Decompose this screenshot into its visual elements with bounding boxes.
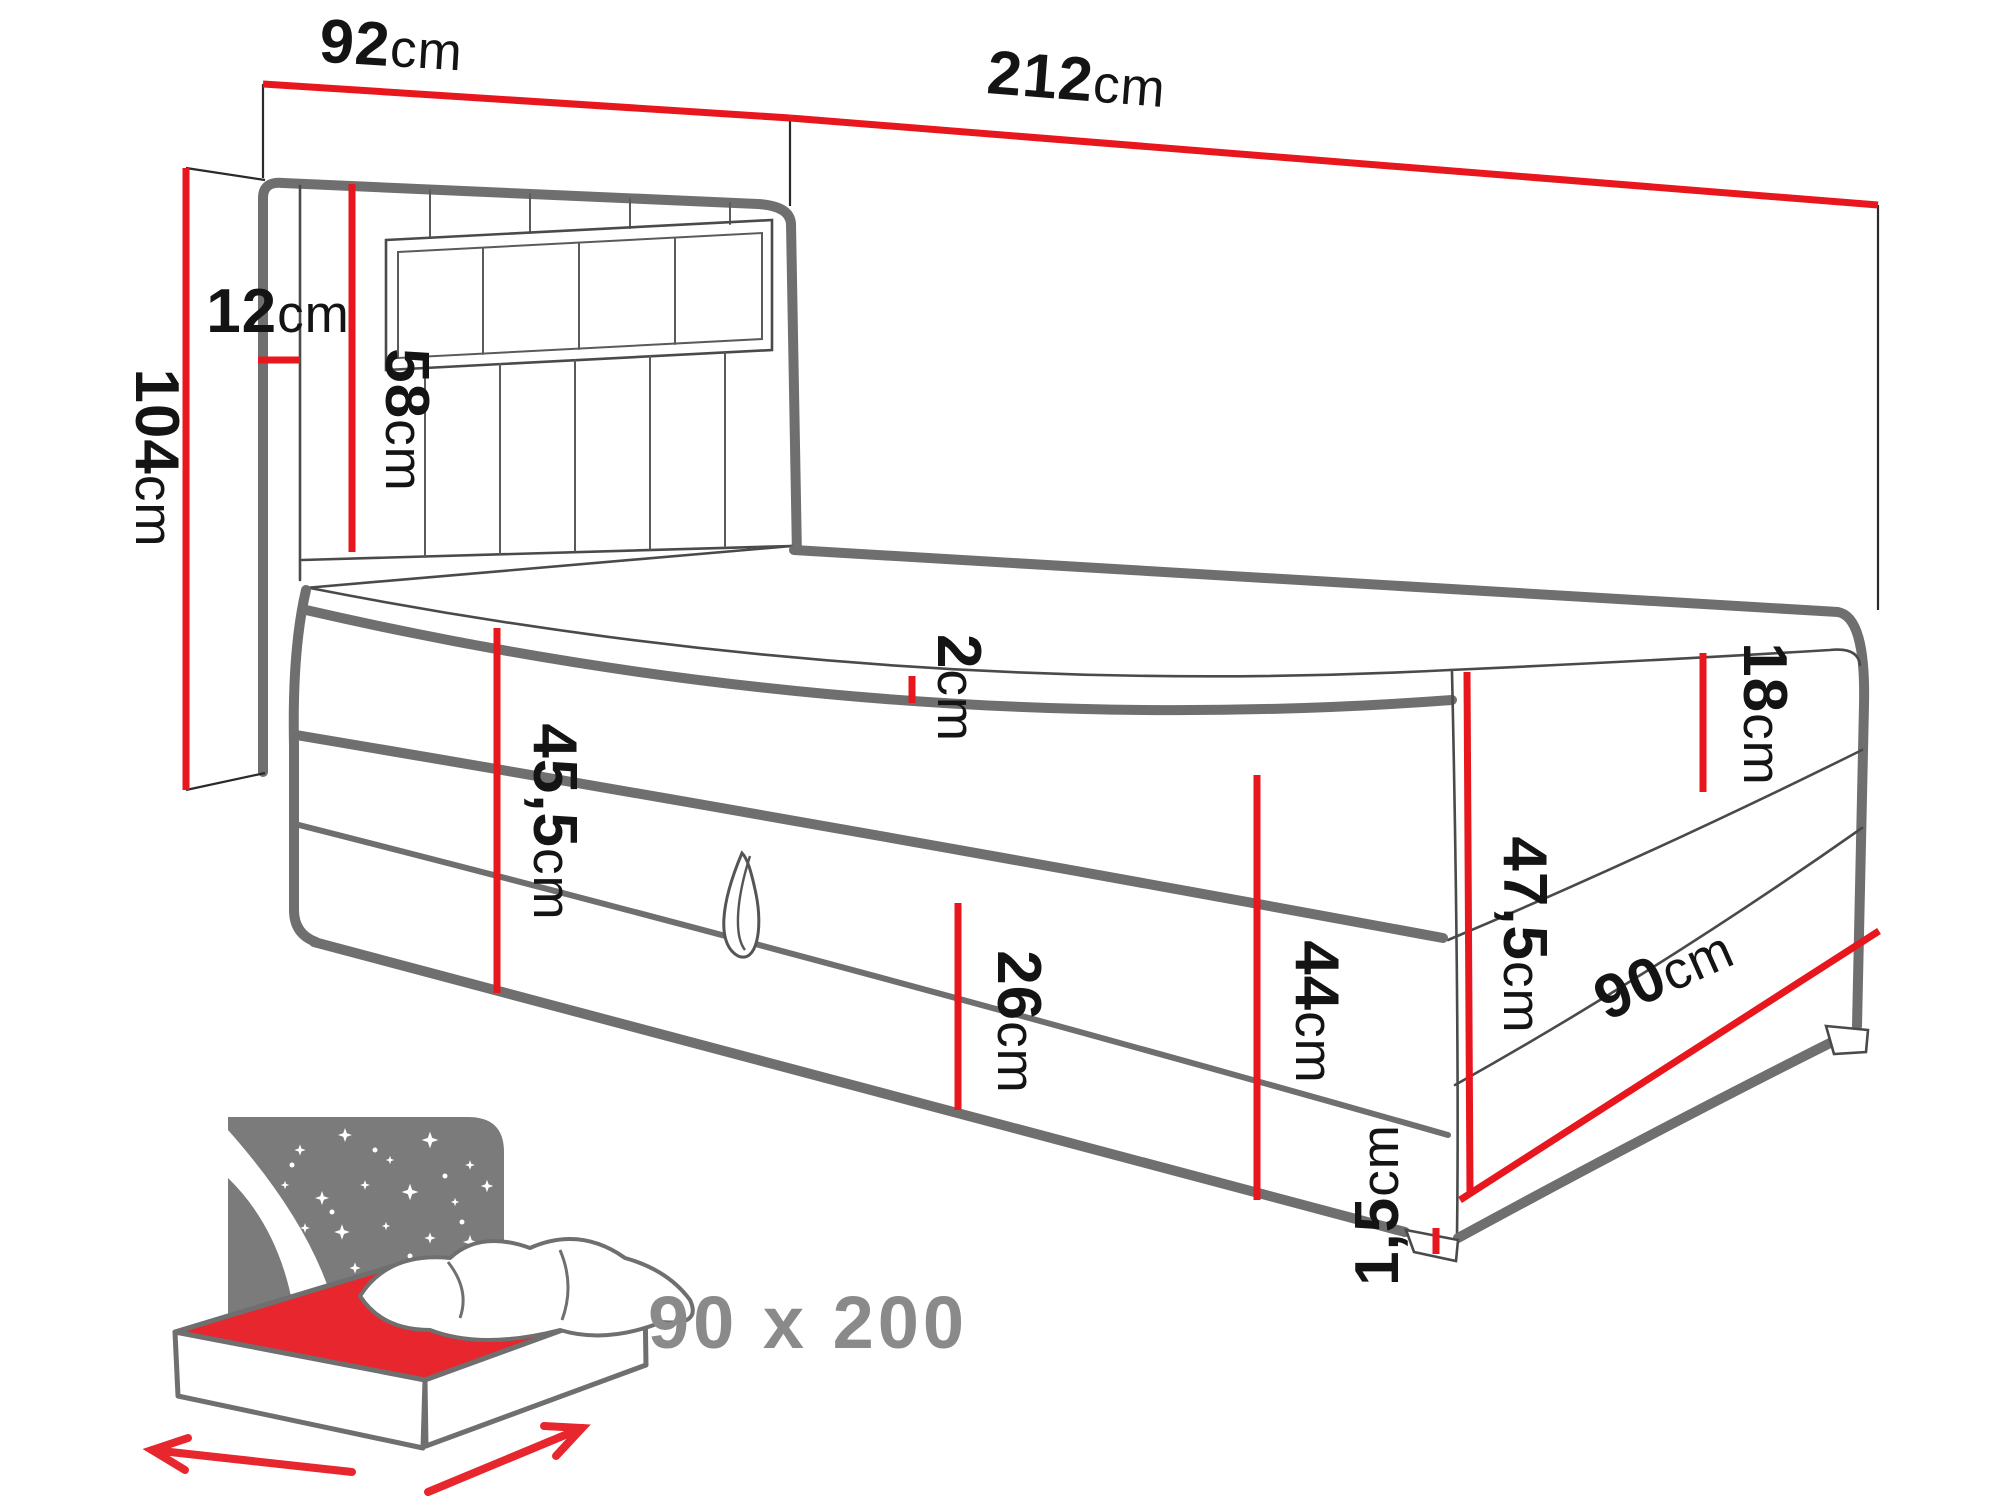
front-foot-glide [1406,1230,1458,1261]
ext-104-bottom-floor [186,773,265,790]
dimension-label-212: 212cm [985,38,1169,121]
dimension-total-height: 104cm [122,168,191,790]
bed-dimension-diagram: 92cm 212cm 104cm 12cm 58cm 2cm 45,5cm 26… [0,0,2000,1500]
dimension-total-length: 212cm [790,38,1878,205]
dimension-line-47-5 [1467,672,1470,1195]
mattress-size-label: 90 x 200 [648,1281,968,1364]
back-foot-glide [1826,1026,1868,1054]
bed-drawing [263,183,1868,1261]
headboard-right-edge [791,224,797,556]
mattress-size-icon: 90 x 200 [152,1117,968,1492]
dimension-label-2: 2cm [924,634,993,742]
dimension-label-26: 26cm [984,950,1053,1094]
dimension-label-45-5: 45,5cm [520,723,589,920]
ext-104-top [186,168,265,180]
dimension-line-92 [263,84,790,118]
dimension-headboard-width: 92cm [263,7,790,118]
dimension-label-92: 92cm [317,7,465,85]
dimension-line-212 [790,118,1878,205]
dimension-label-104: 104cm [122,368,191,547]
dimension-label-18: 18cm [1730,642,1799,786]
dimension-label-47-5: 47,5cm [1490,836,1559,1033]
diagram-canvas: 92cm 212cm 104cm 12cm 58cm 2cm 45,5cm 26… [0,0,2000,1500]
dimension-label-44: 44cm [1282,940,1351,1084]
dimension-label-58: 58cm [372,348,441,492]
dimension-label-1-5: 1,5cm [1343,1124,1412,1286]
dimension-label-12: 12cm [206,277,350,346]
